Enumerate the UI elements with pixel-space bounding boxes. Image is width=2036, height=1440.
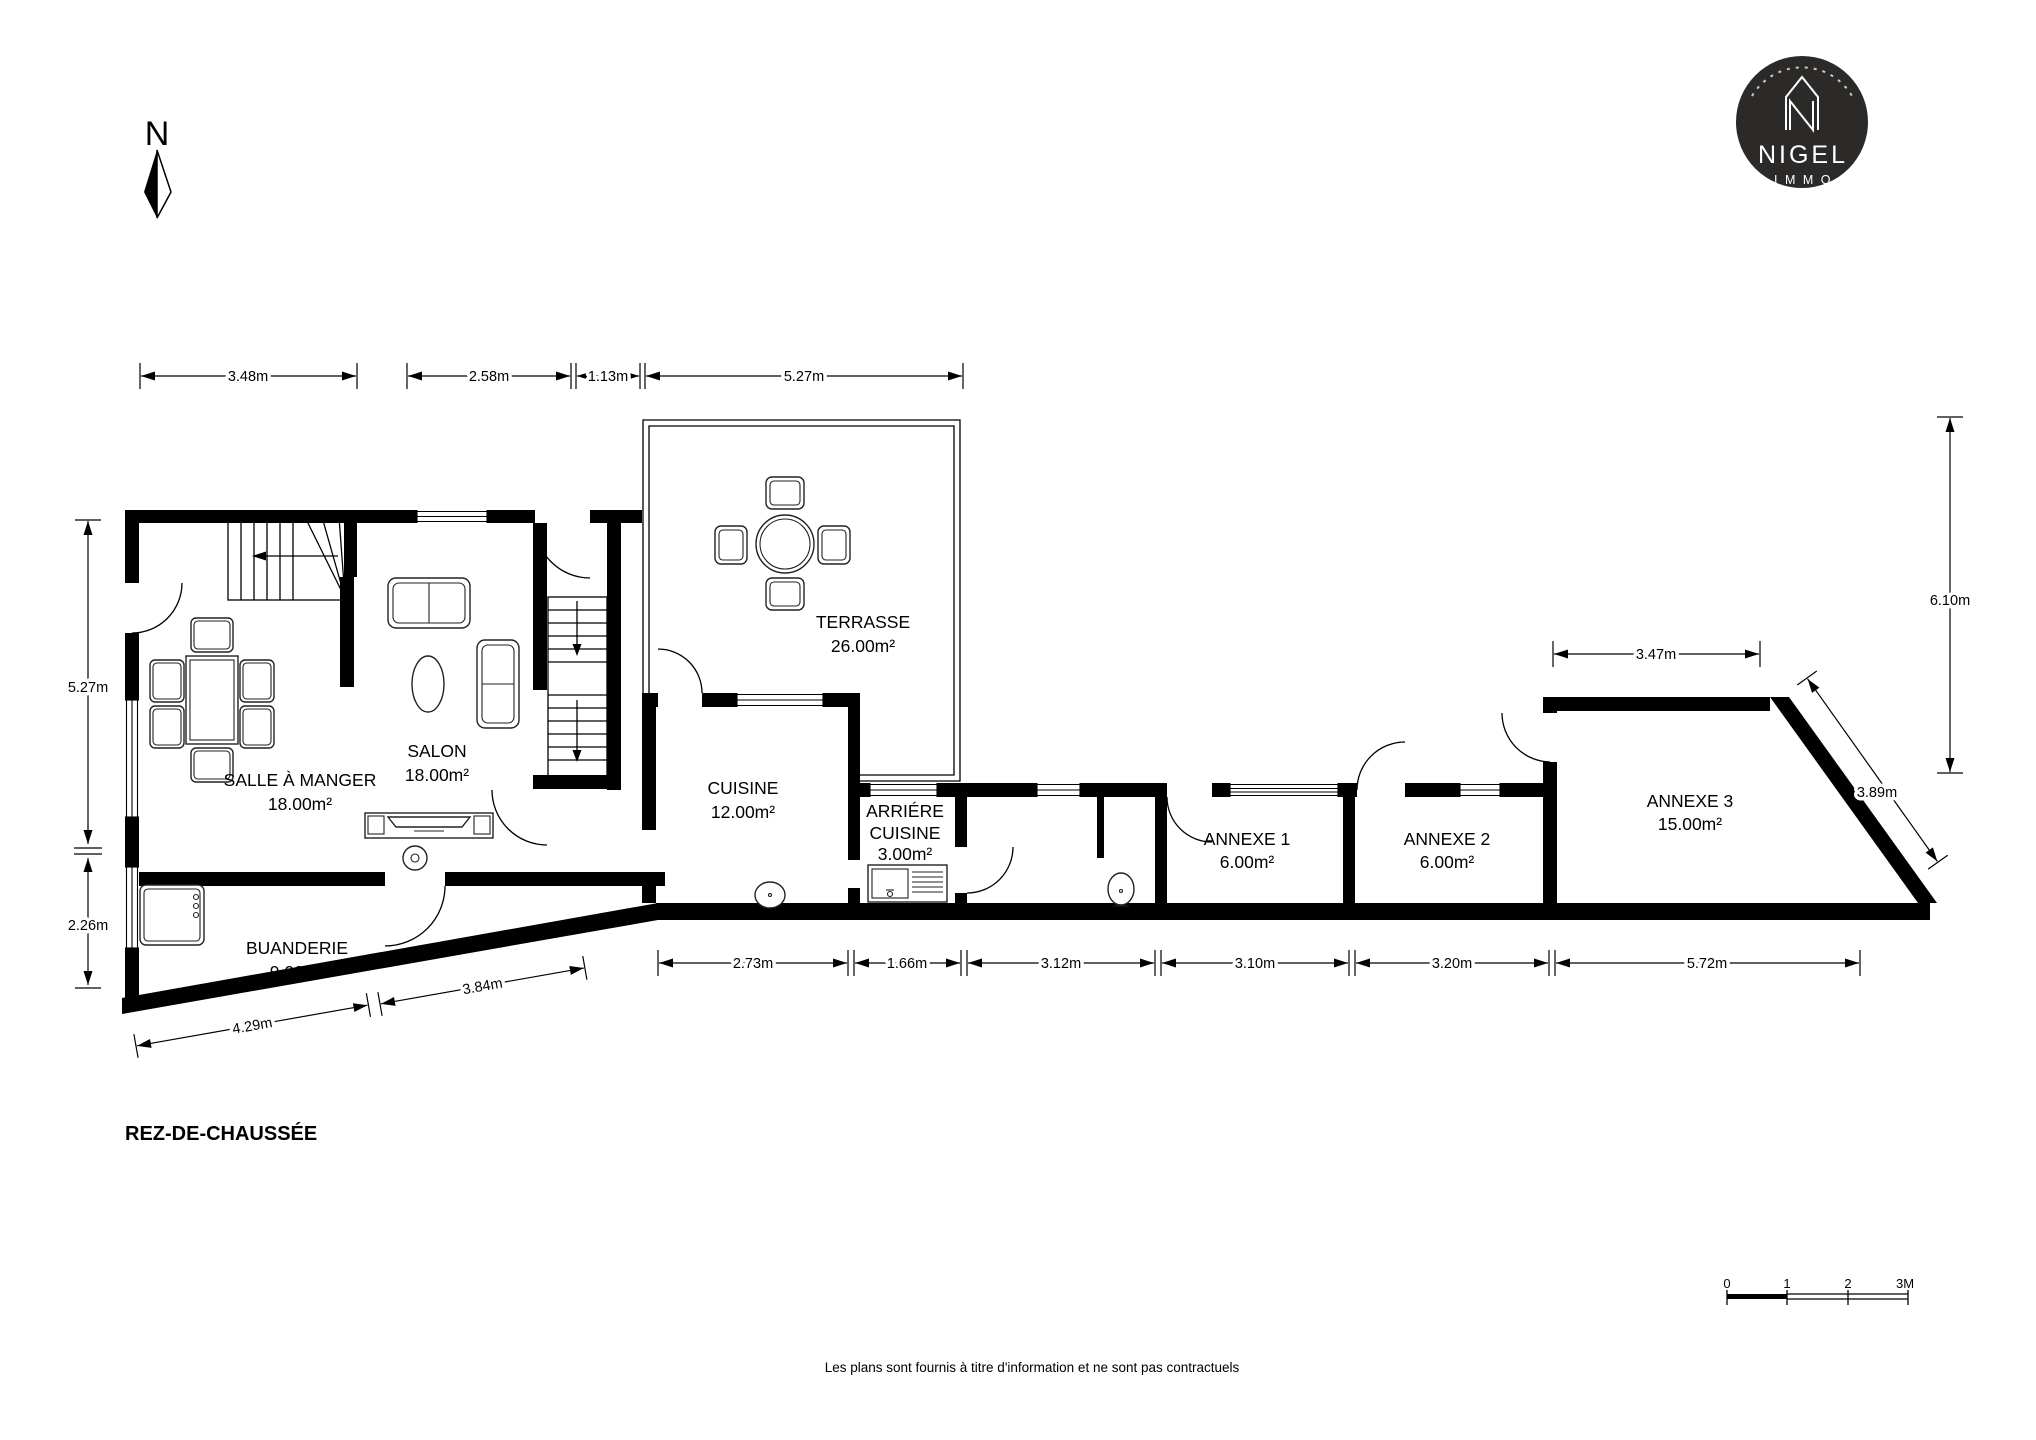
stairs-down <box>548 597 607 777</box>
label-arriere-2: CUISINE <box>870 823 941 843</box>
label-terrasse: TERRASSE <box>816 612 910 632</box>
north-arrow: N <box>144 115 171 218</box>
svg-text:3.20m: 3.20m <box>1432 956 1472 972</box>
dim-right-610: 6.10m <box>1930 417 1970 773</box>
dim-bottom-3: 3.12m <box>967 950 1155 976</box>
salon-furniture <box>365 578 519 870</box>
window-cuisine <box>737 693 823 707</box>
svg-text:3.47m: 3.47m <box>1636 647 1676 663</box>
svg-text:1.66m: 1.66m <box>887 956 927 972</box>
window-salon <box>417 510 487 523</box>
boiler <box>755 882 785 908</box>
label-annexe2: ANNEXE 2 <box>1404 829 1491 849</box>
area-annexe3: 15.00m² <box>1658 814 1722 834</box>
toilet <box>1108 873 1134 906</box>
svg-text:5.27m: 5.27m <box>68 680 108 696</box>
label-buanderie: BUANDERIE <box>246 938 348 958</box>
door-annexe3 <box>1502 713 1550 762</box>
label-arriere-1: ARRIÉRE <box>866 801 944 821</box>
stairs-main <box>228 516 345 600</box>
door-arriere-cuisine <box>967 847 1013 893</box>
dim-top-3: 1.13m <box>576 363 640 389</box>
dim-bottom-2: 1.66m <box>854 950 961 976</box>
svg-text:5.72m: 5.72m <box>1687 956 1727 972</box>
dim-left-2: 2.26m <box>68 858 108 988</box>
floorplan-drawing: N NIGEL IMMO <box>0 0 2036 1440</box>
window-annexe1 <box>1230 783 1338 797</box>
window-corridor <box>1037 783 1080 797</box>
label-salon: SALON <box>407 741 466 761</box>
label-salle-a-manger: SALLE À MANGER <box>224 770 377 790</box>
svg-text:3.84m: 3.84m <box>461 976 503 999</box>
area-salon: 18.00m² <box>405 765 469 785</box>
label-annexe3: ANNEXE 3 <box>1647 791 1734 811</box>
window-arriere-cuisine <box>870 783 937 797</box>
area-arriere: 3.00m² <box>878 844 933 864</box>
door-couloir <box>492 790 547 845</box>
svg-text:1.13m: 1.13m <box>588 369 628 385</box>
salon-plant <box>403 846 427 870</box>
area-terrasse: 26.00m² <box>831 636 895 656</box>
scale-bar: 0 1 2 3M <box>1723 1276 1914 1305</box>
scale-label-3: 3M <box>1896 1276 1914 1291</box>
svg-text:2.58m: 2.58m <box>469 369 509 385</box>
dim-top-1: 3.48m <box>140 363 357 389</box>
scale-label-0: 0 <box>1723 1276 1730 1291</box>
dim-bottom-4: 3.10m <box>1161 950 1349 976</box>
area-annexe2: 6.00m² <box>1420 852 1475 872</box>
dim-top-4: 5.27m <box>645 363 963 389</box>
window-left-upper <box>125 700 139 817</box>
svg-text:4.29m: 4.29m <box>231 1015 273 1038</box>
label-cuisine: CUISINE <box>708 778 779 798</box>
dim-slant-2: 3.84m <box>378 956 587 1016</box>
window-annexe2 <box>1460 783 1500 797</box>
scale-label-2: 2 <box>1844 1276 1851 1291</box>
north-arrow-right-half <box>157 150 171 218</box>
svg-text:6.10m: 6.10m <box>1930 593 1970 609</box>
washing-machine <box>140 885 204 945</box>
area-buanderie: 9.00m² <box>270 962 325 982</box>
door-annexe2 <box>1357 742 1405 790</box>
door-terrasse <box>658 649 702 693</box>
scale-label-1: 1 <box>1783 1276 1790 1291</box>
sink-counter <box>868 865 947 902</box>
terrace-table-set <box>715 477 850 610</box>
area-cuisine: 12.00m² <box>711 802 775 822</box>
disclaimer-text: Les plans sont fournis à titre d'informa… <box>825 1360 1240 1375</box>
window-left-lower <box>125 867 139 948</box>
floorplan-page: N NIGEL IMMO <box>0 0 2036 1440</box>
dim-right-347: 3.47m <box>1553 641 1760 667</box>
dim-bottom-6: 5.72m <box>1555 950 1860 976</box>
door-salle-a-manger <box>132 583 182 633</box>
dim-left-1: 5.27m <box>68 520 108 854</box>
tv-screen <box>388 817 470 827</box>
page-title: REZ-DE-CHAUSSÉE <box>125 1122 317 1145</box>
stairs-down-arrow-1 <box>573 644 582 656</box>
svg-text:3.10m: 3.10m <box>1235 956 1275 972</box>
dim-bottom-1: 2.73m <box>658 950 848 976</box>
svg-text:3.12m: 3.12m <box>1041 956 1081 972</box>
dim-bottom-5: 3.20m <box>1355 950 1549 976</box>
label-annexe1: ANNEXE 1 <box>1204 829 1291 849</box>
north-label: N <box>145 115 170 153</box>
svg-text:3.89m: 3.89m <box>1857 785 1897 801</box>
svg-text:5.27m: 5.27m <box>784 369 824 385</box>
door-buanderie <box>385 886 445 946</box>
north-arrow-left-half <box>144 150 157 218</box>
dining-table-set <box>150 618 274 782</box>
svg-text:2.26m: 2.26m <box>68 918 108 934</box>
svg-text:3.48m: 3.48m <box>228 369 268 385</box>
dim-top-2: 2.58m <box>407 363 571 389</box>
logo-sub-text: IMMO <box>1774 173 1838 187</box>
annexe3-slanted-wall <box>1770 697 1937 903</box>
area-salle-a-manger: 18.00m² <box>268 794 332 814</box>
logo-brand-text: NIGEL <box>1758 141 1848 169</box>
svg-text:2.73m: 2.73m <box>733 956 773 972</box>
nigel-immo-logo: NIGEL IMMO <box>1736 56 1868 188</box>
area-annexe1: 6.00m² <box>1220 852 1275 872</box>
